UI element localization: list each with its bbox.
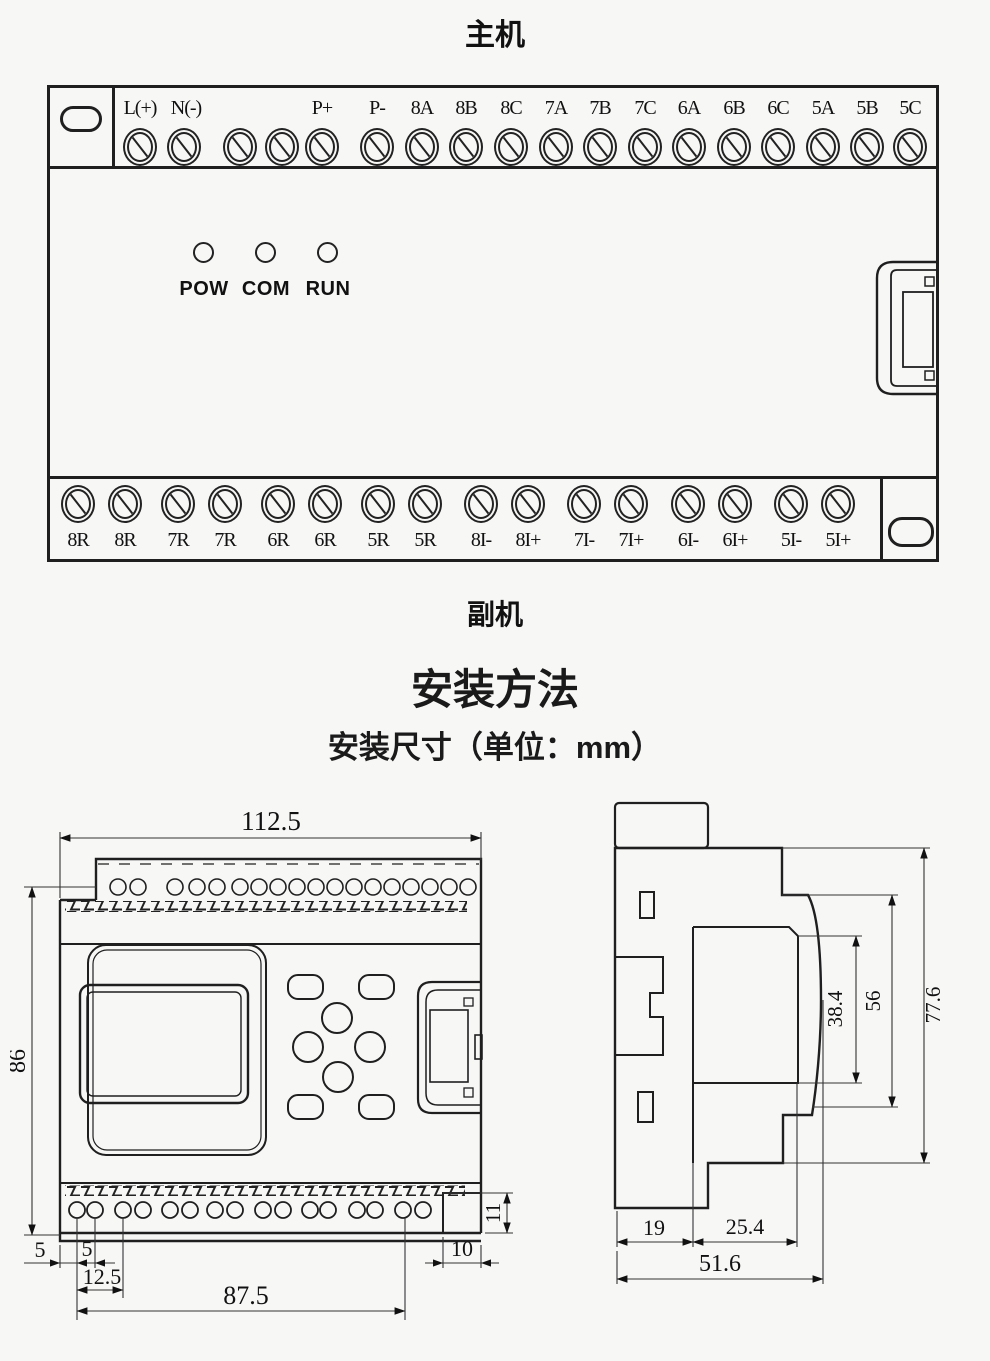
display-window [80,985,248,1103]
terminal-screw [61,485,95,523]
installation-heading: 安装方法 [0,656,990,717]
mounting-slot-top-left [60,106,102,132]
terminal-screw [360,128,394,166]
side-view-drawing: 38.4 56 77.6 19 25.4 51.6 [590,795,988,1300]
terminal-label: 5R [414,530,435,550]
terminal-screw [167,128,201,166]
terminal-screw [774,485,808,523]
terminal-screw [161,485,195,523]
dim-rail-section: 19 [643,1215,665,1240]
terminal-label: 6R [314,530,335,550]
key-up [322,1003,352,1033]
side-window-upper [640,892,654,918]
dim-notch-height: 11 [481,1203,505,1223]
main-unit-title: 主机 [0,10,990,54]
side-top-hook [615,803,708,848]
dim-overall-width: 112.5 [241,806,301,836]
keypad [288,975,394,1119]
installation-subheading: 安装尺寸（单位：mm） [0,722,990,767]
terminal-label: 5I+ [826,530,851,550]
dim-body-depth: 56 [861,991,885,1012]
dim-notch-width: 10 [451,1236,473,1261]
led-label-com: COM [242,279,290,299]
terminal-label: 7B [589,98,610,118]
terminal-label: 6B [723,98,744,118]
side-cover-profile [693,927,798,1083]
key-ok [359,975,394,999]
terminal-label: 8I+ [516,530,541,550]
terminal-screw [123,128,157,166]
terminal-screw [671,485,705,523]
dim-cover-depth: 38.4 [823,990,847,1027]
key-left-lower [288,1095,323,1119]
top-strip-divider-line [49,166,937,169]
din-serration-top [65,901,467,912]
terminal-label: P+ [312,98,332,118]
led-run [317,242,338,263]
dim-front-section: 25.4 [726,1214,765,1239]
terminal-label: 6R [267,530,288,550]
terminal-screw [361,485,395,523]
connector-outer-shell [877,262,939,394]
terminal-label: 7A [545,98,567,118]
terminal-screw [567,485,601,523]
dim-overall-depth: 77.6 [921,987,945,1024]
key-left [293,1032,323,1062]
terminal-label: 8I- [471,530,491,550]
secondary-unit-title: 副机 [0,593,990,633]
terminal-screw [108,485,142,523]
key-esc [288,975,323,999]
terminal-label: 8R [114,530,135,550]
key-right-lower [359,1095,394,1119]
front-terminal-holes-top [110,879,476,895]
terminal-screw [511,485,545,523]
terminal-screw [628,128,662,166]
dim-hole-pitch: 5 [82,1236,93,1261]
connector-notch-top [925,277,934,286]
terminal-label: 6I- [678,530,698,550]
led-label-pow: POW [179,279,228,299]
terminal-screw [850,128,884,166]
terminal-screw [449,128,483,166]
din-serration-bottom [65,1185,465,1196]
dim-overall-height: 86 [10,1049,31,1073]
terminal-label: 8A [411,98,433,118]
dim-edge-to-first-hole: 5 [35,1237,46,1262]
bottom-strip-divider-line [49,476,937,479]
terminal-screw [672,128,706,166]
terminal-label: 7I+ [619,530,644,550]
terminal-screw [806,128,840,166]
terminal-screw [308,485,342,523]
terminal-label: 5R [367,530,388,550]
terminal-screw [305,128,339,166]
terminal-screw [821,485,855,523]
connector-notch-bottom [925,371,934,380]
terminal-label: L(+) [124,98,157,118]
terminal-label: 5C [899,98,920,118]
led-com [255,242,276,263]
dim-hole-span: 87.5 [223,1281,269,1310]
dim-first-to-third-hole: 12.5 [83,1264,122,1289]
terminal-screw [614,485,648,523]
terminal-screw [208,485,242,523]
terminal-label: 6A [678,98,700,118]
terminal-screw [494,128,528,166]
dim-overall-width-side: 51.6 [699,1251,741,1277]
connector-inner-shell [891,270,939,386]
side-din-clip [615,957,663,1055]
front-door-and-screen [80,945,266,1155]
led-label-run: RUN [306,279,351,299]
mounting-slot-bottom-right [888,517,934,547]
terminal-screw [405,128,439,166]
terminal-screw [761,128,795,166]
terminal-screw [893,128,927,166]
terminal-screw [265,128,299,166]
terminal-label: 7C [634,98,655,118]
top-left-cell-divider [112,87,115,167]
terminal-label: 5I- [781,530,801,550]
bottom-right-cell-divider [880,478,883,560]
terminal-screw [261,485,295,523]
terminal-label: 7I- [574,530,594,550]
front-terminal-holes-bottom [69,1202,431,1218]
side-view-outline [615,803,821,1208]
terminal-label: 7R [214,530,235,550]
side-window-lower [638,1092,653,1122]
expansion-connector [873,258,939,398]
terminal-screw [718,485,752,523]
terminal-label: 8R [67,530,88,550]
terminal-label: 5B [856,98,877,118]
front-connector [418,982,482,1113]
key-down [323,1062,353,1092]
manual-page: 主机 L(+) N(-) P+ P- 8A 8B 8C 7A 7B 7C 6A … [0,0,990,1361]
connector-socket [903,292,933,367]
terminal-label: 8B [455,98,476,118]
terminal-screw [223,128,257,166]
key-right [355,1032,385,1062]
terminal-screw [464,485,498,523]
terminal-screw [717,128,751,166]
terminal-label: 8C [500,98,521,118]
terminal-label: N(-) [171,98,201,118]
front-view-drawing: 112.5 86 5 5 12.5 87.5 11 10 [10,790,530,1342]
terminal-label: 6I+ [723,530,748,550]
terminal-screw [408,485,442,523]
terminal-screw [583,128,617,166]
terminal-screw [539,128,573,166]
terminal-label: P- [369,98,385,118]
led-pow [193,242,214,263]
terminal-label: 7R [167,530,188,550]
terminal-label: 5A [812,98,834,118]
terminal-label: 6C [767,98,788,118]
